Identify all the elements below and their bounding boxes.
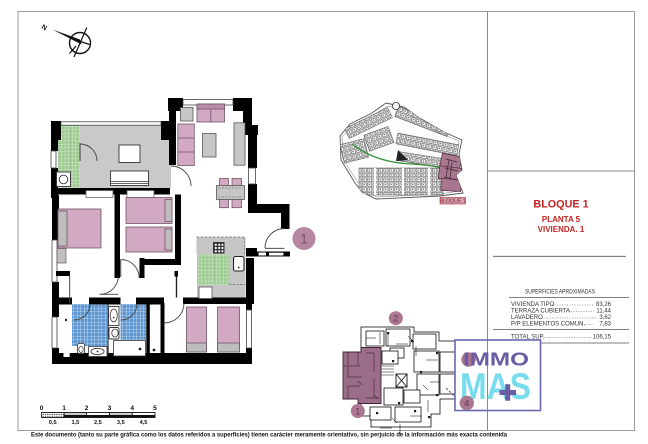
svg-text:1: 1 bbox=[62, 405, 66, 412]
svg-text:0: 0 bbox=[40, 405, 44, 412]
svg-text:BLOQUE 1: BLOQUE 1 bbox=[440, 199, 466, 205]
svg-text:4: 4 bbox=[464, 399, 469, 410]
svg-text:5: 5 bbox=[153, 405, 157, 412]
svg-text:3: 3 bbox=[108, 405, 112, 412]
svg-text:7,83: 7,83 bbox=[599, 322, 611, 328]
svg-text:4,5: 4,5 bbox=[140, 420, 148, 426]
svg-text:2: 2 bbox=[85, 405, 89, 412]
svg-text:106,15: 106,15 bbox=[593, 335, 612, 341]
svg-text:2,5: 2,5 bbox=[94, 420, 102, 426]
svg-text:BLOQUE 1: BLOQUE 1 bbox=[533, 199, 588, 211]
svg-text:1,5: 1,5 bbox=[72, 420, 80, 426]
svg-text:Este documento (tanto su parte: Este documento (tanto su parte gráfica c… bbox=[31, 433, 508, 439]
svg-text:P/P ELEMENTOS COMUN.: P/P ELEMENTOS COMUN. bbox=[511, 322, 585, 328]
svg-text:VIVIENDA TIPO: VIVIENDA TIPO bbox=[511, 302, 555, 308]
svg-text:LAVADERO: LAVADERO bbox=[511, 315, 543, 321]
svg-text:1: 1 bbox=[300, 231, 308, 247]
svg-text:3,5: 3,5 bbox=[117, 420, 125, 426]
svg-text:VIVIENDA. 1: VIVIENDA. 1 bbox=[538, 225, 585, 234]
svg-text:1: 1 bbox=[355, 406, 360, 417]
svg-text:TERRAZA CUBIERTA: TERRAZA CUBIERTA bbox=[511, 309, 570, 315]
svg-text:83,26: 83,26 bbox=[596, 302, 612, 308]
svg-text:4: 4 bbox=[130, 405, 134, 412]
svg-text:SUPERFICIES APROXIMADAS: SUPERFICIES APROXIMADAS bbox=[525, 289, 595, 296]
svg-text:2: 2 bbox=[393, 314, 398, 325]
svg-text:11,44: 11,44 bbox=[596, 309, 611, 315]
svg-text:3,62: 3,62 bbox=[599, 315, 611, 321]
svg-text:PLANTA 5: PLANTA 5 bbox=[542, 215, 581, 224]
svg-text:0,5: 0,5 bbox=[49, 420, 57, 426]
